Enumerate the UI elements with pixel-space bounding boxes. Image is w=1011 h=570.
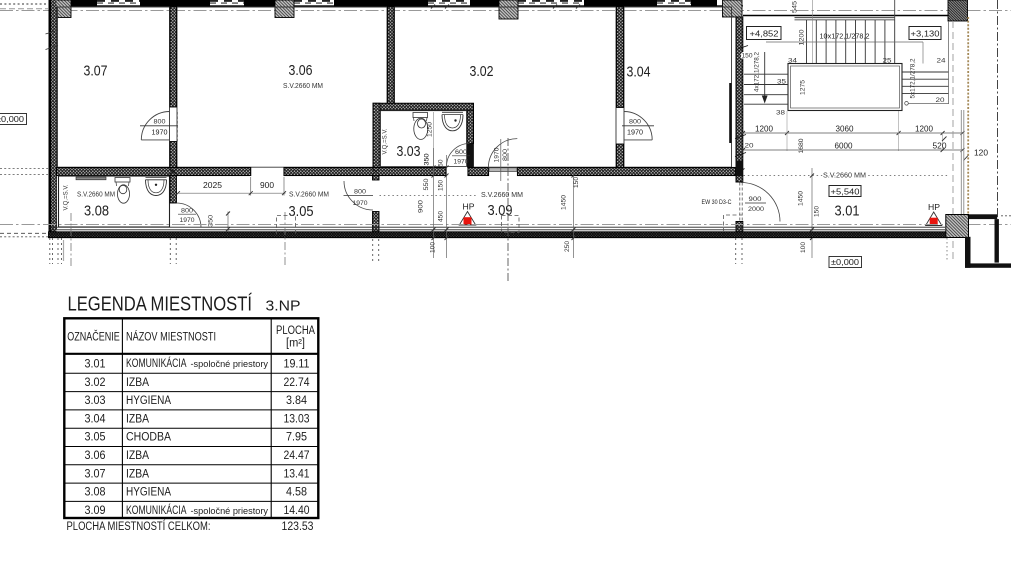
svg-text:550: 550 bbox=[423, 178, 430, 190]
svg-text:20: 20 bbox=[936, 97, 945, 104]
svg-text:PLOCHA MIESTNOSTÍ CELKOM:: PLOCHA MIESTNOSTÍ CELKOM: bbox=[67, 520, 211, 533]
svg-text:S.V.2660 MM: S.V.2660 MM bbox=[823, 172, 866, 179]
svg-text:24: 24 bbox=[937, 58, 946, 65]
svg-text:24.47: 24.47 bbox=[284, 450, 310, 462]
svg-text:3.06: 3.06 bbox=[289, 62, 313, 79]
svg-text:150: 150 bbox=[742, 53, 753, 60]
svg-text:NÁZOV MIESTNOSTI: NÁZOV MIESTNOSTI bbox=[126, 331, 216, 344]
svg-text:19.11: 19.11 bbox=[284, 359, 310, 371]
svg-text:3.05: 3.05 bbox=[289, 203, 314, 220]
svg-text:25: 25 bbox=[883, 58, 892, 65]
svg-text:3060: 3060 bbox=[836, 124, 854, 134]
svg-text:4.58: 4.58 bbox=[286, 487, 307, 499]
svg-text:3.01: 3.01 bbox=[835, 203, 860, 220]
svg-text:3.03: 3.03 bbox=[85, 395, 106, 407]
svg-text:IZBA: IZBA bbox=[126, 377, 149, 389]
svg-text:1200: 1200 bbox=[755, 124, 773, 134]
svg-text:±0,000: ±0,000 bbox=[831, 257, 859, 267]
svg-text:IZBA: IZBA bbox=[126, 468, 149, 480]
svg-text:34: 34 bbox=[788, 58, 797, 65]
svg-text:3.02: 3.02 bbox=[85, 377, 106, 389]
svg-text:5x172,1/278,2: 5x172,1/278,2 bbox=[910, 58, 917, 98]
svg-text:3.09: 3.09 bbox=[85, 505, 106, 517]
svg-text:S.V.2660 MM: S.V.2660 MM bbox=[77, 192, 115, 199]
svg-text:150: 150 bbox=[438, 180, 445, 191]
svg-text:3.04: 3.04 bbox=[627, 64, 651, 81]
svg-text:V.Q.=S.V.: V.Q.=S.V. bbox=[382, 128, 389, 154]
svg-text:3.01: 3.01 bbox=[85, 359, 106, 371]
svg-text:3.05: 3.05 bbox=[85, 432, 106, 444]
svg-text:800: 800 bbox=[154, 119, 166, 126]
svg-text:350: 350 bbox=[208, 214, 215, 226]
svg-text:1200: 1200 bbox=[915, 124, 933, 134]
svg-text:S.V.2660 MM: S.V.2660 MM bbox=[481, 192, 523, 199]
svg-text:-spoločné priestory: -spoločné priestory bbox=[191, 506, 269, 516]
svg-text:CHODBA: CHODBA bbox=[126, 432, 171, 444]
svg-text:3.08: 3.08 bbox=[85, 487, 106, 499]
svg-text:±0,000: ±0,000 bbox=[0, 114, 24, 124]
svg-text:900: 900 bbox=[749, 196, 762, 203]
svg-text:+5,540: +5,540 bbox=[831, 186, 860, 196]
svg-text:120: 120 bbox=[974, 148, 988, 158]
svg-text:1970: 1970 bbox=[627, 127, 643, 136]
svg-text:-spoločné priestory: -spoločné priestory bbox=[191, 359, 269, 369]
svg-text:+4,852: +4,852 bbox=[750, 29, 779, 39]
svg-text:14.40: 14.40 bbox=[284, 505, 310, 517]
svg-text:7.95: 7.95 bbox=[286, 432, 307, 444]
svg-text:800: 800 bbox=[629, 119, 641, 126]
svg-text:3.09: 3.09 bbox=[488, 202, 513, 219]
svg-text:38: 38 bbox=[776, 110, 785, 117]
svg-text:3.07: 3.07 bbox=[84, 63, 108, 80]
svg-text:123.53: 123.53 bbox=[282, 521, 314, 533]
svg-text:250: 250 bbox=[564, 241, 571, 252]
svg-text:HYGIENA: HYGIENA bbox=[126, 395, 171, 407]
svg-text:V.Q.=S.V.: V.Q.=S.V. bbox=[62, 184, 69, 210]
svg-text:S.V.2660 MM: S.V.2660 MM bbox=[289, 192, 329, 199]
svg-text:S.V.2660 MM: S.V.2660 MM bbox=[283, 83, 323, 90]
svg-text:13.41: 13.41 bbox=[284, 468, 310, 480]
svg-text:150: 150 bbox=[438, 159, 445, 170]
svg-text:1450: 1450 bbox=[798, 191, 805, 206]
svg-text:1970: 1970 bbox=[454, 158, 469, 165]
svg-text:3.03: 3.03 bbox=[397, 143, 421, 160]
svg-text:KOMUNIKÁCIA: KOMUNIKÁCIA bbox=[126, 357, 187, 370]
svg-text:800: 800 bbox=[181, 207, 193, 214]
svg-text:2025: 2025 bbox=[203, 180, 222, 190]
svg-text:1450: 1450 bbox=[561, 195, 568, 210]
svg-text:KOMUNIKÁCIA: KOMUNIKÁCIA bbox=[126, 504, 187, 517]
svg-text:LEGENDA MIESTNOSTÍ: LEGENDA MIESTNOSTÍ bbox=[68, 293, 253, 316]
svg-text:+3,130: +3,130 bbox=[911, 29, 940, 39]
svg-text:545: 545 bbox=[792, 1, 799, 13]
svg-text:13.03: 13.03 bbox=[284, 413, 310, 425]
svg-text:1275: 1275 bbox=[800, 80, 807, 95]
svg-text:1970: 1970 bbox=[152, 127, 168, 136]
svg-text:150: 150 bbox=[814, 206, 821, 217]
svg-text:HP: HP bbox=[463, 202, 475, 212]
svg-text:3.04: 3.04 bbox=[85, 413, 107, 425]
svg-text:600: 600 bbox=[455, 149, 467, 156]
svg-text:IZBA: IZBA bbox=[126, 450, 149, 462]
svg-text:900: 900 bbox=[418, 200, 425, 213]
svg-text:10x172,1/278,2: 10x172,1/278,2 bbox=[820, 33, 870, 40]
svg-text:[m²]: [m²] bbox=[286, 338, 305, 350]
svg-text:800: 800 bbox=[354, 188, 366, 195]
svg-text:1680: 1680 bbox=[798, 138, 805, 153]
svg-text:1970: 1970 bbox=[180, 217, 195, 224]
svg-text:20: 20 bbox=[745, 143, 754, 150]
svg-text:150: 150 bbox=[573, 177, 580, 188]
svg-text:HP: HP bbox=[928, 202, 940, 212]
svg-text:HYGIENA: HYGIENA bbox=[126, 487, 171, 499]
svg-text:3.06: 3.06 bbox=[85, 450, 106, 462]
svg-text:1970: 1970 bbox=[494, 147, 501, 162]
svg-text:3.07: 3.07 bbox=[85, 468, 106, 480]
svg-text:520: 520 bbox=[933, 141, 947, 151]
svg-text:22.74: 22.74 bbox=[284, 377, 311, 389]
svg-text:EW 30 D3-C: EW 30 D3-C bbox=[702, 199, 732, 206]
svg-text:3.84: 3.84 bbox=[286, 395, 308, 407]
svg-text:450: 450 bbox=[438, 211, 445, 222]
svg-text:6000: 6000 bbox=[835, 141, 853, 151]
svg-text:100: 100 bbox=[800, 242, 807, 253]
svg-text:2000: 2000 bbox=[748, 206, 764, 213]
svg-text:1970: 1970 bbox=[353, 200, 368, 207]
svg-text:900: 900 bbox=[260, 180, 274, 190]
svg-text:100: 100 bbox=[430, 242, 437, 253]
svg-text:3.08: 3.08 bbox=[84, 203, 109, 220]
svg-text:4x172,1/278,2: 4x172,1/278,2 bbox=[754, 52, 761, 92]
svg-text:350: 350 bbox=[424, 153, 431, 165]
svg-text:1250: 1250 bbox=[427, 122, 434, 137]
svg-text:35: 35 bbox=[777, 79, 786, 86]
svg-text:IZBA: IZBA bbox=[126, 413, 149, 425]
svg-text:OZNAČENIE: OZNAČENIE bbox=[67, 331, 120, 344]
svg-text:3.02: 3.02 bbox=[470, 63, 494, 80]
svg-text:1200: 1200 bbox=[799, 29, 806, 45]
svg-text:3.NP: 3.NP bbox=[266, 298, 301, 315]
svg-text:PLOCHA: PLOCHA bbox=[276, 325, 315, 337]
